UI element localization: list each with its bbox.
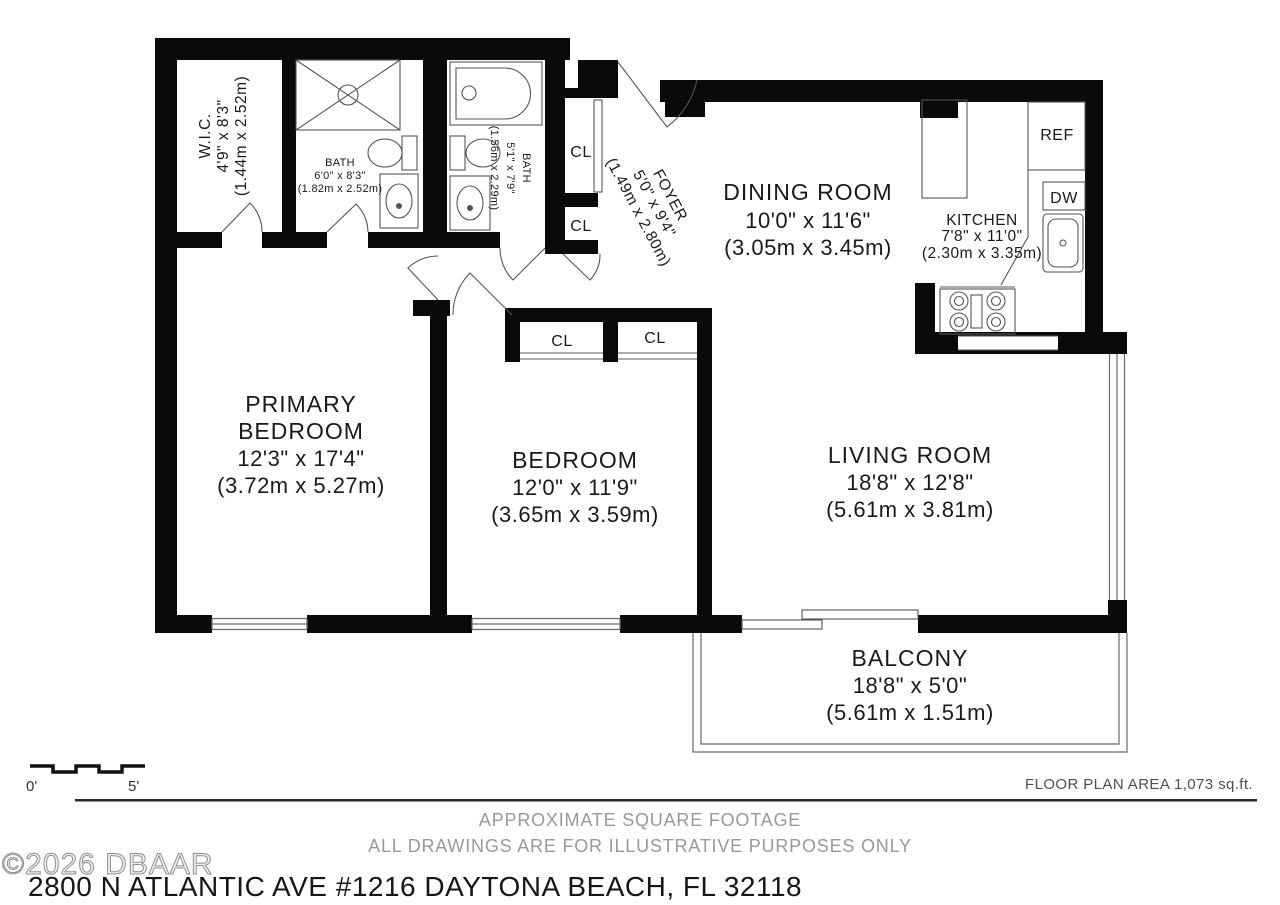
sink-1 [380,174,418,228]
balcony-metric: (5.61m x 1.51m) [826,700,994,725]
dishwasher-label: DW [1050,190,1078,207]
wic-dims: 4'9" x 8'3" [215,99,232,172]
floor-plan-drawing: W.I.C. 4'9" x 8'3" (1.44m x 2.52m) BATH … [0,0,1280,905]
wall-bath-band-a [155,232,222,248]
floor-plan-area-label: FLOOR PLAN AREA 1,073 sq.ft. [1025,776,1253,793]
living-metric: (5.61m x 3.81m) [826,497,994,522]
kitchen-sink [1043,214,1083,272]
bedroom-name: BEDROOM [512,447,638,473]
wall-bath2-right [545,60,565,250]
kitchen-metric: (2.30m x 3.35m) [922,245,1042,262]
wall-bath-band-c [368,232,500,248]
door-bedroom [453,273,512,315]
wall-wic-right [282,60,296,232]
primary-metric: (3.72m x 5.27m) [217,473,385,498]
bath2-name: BATH [520,153,532,183]
floor-plan-page: W.I.C. 4'9" x 8'3" (1.44m x 2.52m) BATH … [0,0,1280,905]
label-kitchen: KITCHEN 7'8" x 11'0" (2.30m x 3.35m) [922,212,1042,262]
wall-living-left [697,308,712,633]
dining-dims: 10'0" x 11'6" [745,208,871,233]
wall-bedroom-divider [430,300,447,633]
dining-name: DINING ROOM [723,179,892,205]
kitchen-passthrough [958,336,1058,350]
wic-metric: (1.44m x 2.52m) [233,76,250,196]
balcony-dims: 18'8" x 5'0" [853,673,967,698]
toilet-1 [368,136,417,170]
stove [940,289,1015,334]
primary-name1: PRIMARY [245,391,356,417]
sliding-door [742,610,918,629]
label-living-room: LIVING ROOM 18'8" x 12'8" (5.61m x 3.81m… [826,442,994,522]
bath1-dims: 6'0" x 8'3" [314,170,365,182]
wall-entry-jamb [578,60,618,88]
wall-bottom-d [918,615,1108,633]
door-wic [222,203,262,232]
living-name: LIVING ROOM [828,442,992,468]
disclaimer-line-1: APPROXIMATE SQUARE FOOTAGE [479,810,801,830]
window-primary-bedroom [212,619,307,630]
closet-label-bedroom-2: CL [644,330,665,347]
bedroom-metric: (3.65m x 3.59m) [491,502,659,527]
balcony-name: BALCONY [852,645,969,671]
bedroom-dims: 12'0" x 11'9" [512,475,638,500]
door-foyer-closet-slider [594,100,602,192]
wic-name: W.I.C. [197,113,214,158]
wall-kitchen-right [1085,80,1103,332]
refrigerator-label: REF [1040,127,1074,144]
living-dims: 18'8" x 12'8" [846,470,973,495]
closet-label-foyer-1: CL [570,144,591,161]
primary-name2: BEDROOM [238,418,364,444]
bathtub [450,62,542,125]
kitchen-dims: 7'8" x 11'0" [941,228,1022,245]
label-bedroom: BEDROOM 12'0" x 11'9" (3.65m x 3.59m) [491,447,659,527]
wall-pier-dining [665,80,705,117]
door-foyer-closet [563,254,600,280]
wall-bottom-b [307,615,472,633]
wall-foyer-closet-mid [565,193,598,207]
label-primary-bedroom: PRIMARY BEDROOM 12'3" x 17'4" (3.72m x 5… [217,391,385,498]
door-primary-bedroom [408,256,438,300]
footer-divider [75,799,1257,802]
primary-dims: 12'3" x 17'4" [237,446,364,471]
window-bedroom [472,619,620,630]
wall-corner-br [1108,600,1127,633]
wall-top-right [660,80,1103,102]
wall-pier-kitchen-bl [915,283,935,354]
closet-label-bedroom-1: CL [551,333,572,350]
label-bath2: BATH 5'1" x 7'9" (1.56m x 2.29m) [488,126,532,211]
wall-foyer-closet-top [565,88,618,98]
scale-start-label: 0' [26,778,37,795]
wall-bedroom-divider-stub [413,300,450,316]
shower [296,60,400,130]
wall-closet-left-stub [505,308,520,362]
window-living-right [1110,354,1125,600]
footer: FLOOR PLAN AREA 1,073 sq.ft. APPROXIMATE… [2,776,1257,902]
wall-bath-divider [423,38,447,232]
property-address: 2800 N ATLANTIC AVE #1216 DAYTONA BEACH,… [28,871,802,902]
label-balcony: BALCONY 18'8" x 5'0" (5.61m x 1.51m) [826,645,994,725]
wall-bath-band-b [262,232,327,248]
bath1-metric: (1.82m x 2.52m) [298,183,383,195]
closet-label-foyer-2: CL [570,218,591,235]
door-bath2 [500,248,545,280]
wall-top-left [155,38,570,60]
scale-end-label: 5' [128,778,139,795]
wall-pier-kitchen [920,80,958,118]
scale-bar-ruler [30,766,145,772]
scale-bar: 0' 5' [26,766,145,795]
sink-2 [450,176,490,230]
dining-metric: (3.05m x 3.45m) [724,235,892,260]
wall-bottom-a [155,615,212,633]
door-bath1 [327,204,368,232]
label-bath1: BATH 6'0" x 8'3" (1.82m x 2.52m) [298,157,383,195]
bath2-metric: (1.56m x 2.29m) [488,126,500,211]
label-wic: W.I.C. 4'9" x 8'3" (1.44m x 2.52m) [197,76,250,196]
bath2-dims: 5'1" x 7'9" [504,142,516,193]
wall-foyer-closet-bottom [545,240,598,254]
label-dining: DINING ROOM 10'0" x 11'6" (3.05m x 3.45m… [723,179,892,260]
wall-bottom-c [620,615,742,633]
wall-closet-divider [603,308,618,362]
bath1-name: BATH [325,157,355,169]
disclaimer-line-2: ALL DRAWINGS ARE FOR ILLUSTRATIVE PURPOS… [368,836,912,856]
wall-left [155,38,177,633]
kitchen-name: KITCHEN [946,212,1018,229]
label-foyer: FOYER 5'0" x 9'4" (1.49m x 2.80m) [602,138,705,269]
